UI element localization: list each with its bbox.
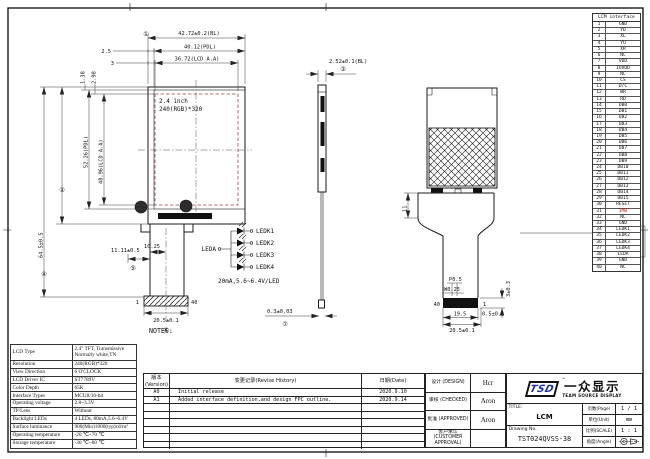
ledk1-label: LEDK1 — [256, 228, 274, 235]
spec-row: View Direction 6 O'CLOCK — [11, 369, 136, 377]
led-circuit: LEDA LEDK1 LEDK2 LEDK3 LEDK4 20mA,5.6~6.… — [202, 222, 280, 285]
pin-number: 14 — [593, 103, 606, 108]
pin-number: 6 — [593, 53, 606, 58]
dim-no-7: ⑦ — [282, 321, 288, 328]
revision-date — [362, 412, 424, 419]
pin-number: 28 — [593, 190, 606, 195]
fpc-tail-front — [141, 224, 193, 320]
pin-name: LEDK1 — [606, 227, 640, 232]
pin-number: 17 — [593, 122, 606, 127]
revision-date: 2020.9.14 — [362, 397, 424, 404]
approval-label: 客户承认 (CUSTOMER APPROVAL) — [426, 430, 471, 448]
approval-signature: Hcr — [471, 374, 505, 392]
spec-label: Surface luminance — [11, 424, 73, 431]
approval-row: 审核 (CHECKED) Aron — [426, 393, 505, 412]
led-rating-label: 20mA,5.6~6.4V/LED — [218, 278, 280, 285]
pin-name: NC — [606, 215, 640, 220]
pin-name: DB4 — [606, 128, 640, 133]
ledk4-label: LEDK4 — [256, 264, 274, 271]
revision-description — [170, 427, 362, 434]
dim-back-flange: 11 — [403, 206, 409, 212]
dim-front-offset-138: 1.38 — [81, 71, 87, 84]
scale-value: 1 : 1 — [616, 426, 642, 436]
title-value: LCM — [507, 410, 582, 424]
spec-value: -20 ℃~70 ℃ — [73, 432, 136, 439]
revision-header: 版本 (Version) 变更记录(Revise History) 日期(Dat… — [144, 374, 424, 389]
revision-version — [144, 434, 170, 441]
spec-value: 240(RGB)*320 — [73, 361, 136, 368]
revision-version — [144, 427, 170, 434]
revision-date — [362, 419, 424, 426]
revision-version — [144, 419, 170, 426]
revision-version — [144, 442, 170, 450]
spec-value: 6 O'CLOCK — [73, 369, 136, 376]
dim-back-05: 0.5±0.1 — [482, 312, 504, 318]
ledk2-label: LEDK2 — [256, 240, 274, 247]
spec-value: Without — [73, 408, 136, 415]
spec-row: Operating temperature -20 ℃~70 ℃ — [11, 432, 136, 440]
dim-no-3: ③ — [340, 66, 346, 73]
revision-row — [144, 404, 424, 412]
drawing-number-cell: Drawing No. TST024QVSS-38 — [507, 426, 583, 447]
pin-number: 20 — [593, 140, 606, 145]
pin-name: DB13 — [606, 184, 640, 189]
revision-row — [144, 419, 424, 427]
spec-label: Color Depth — [11, 384, 73, 391]
pin-name: GND — [606, 22, 640, 27]
back-view: 11 P0.5 W0.25 40 1 3±0.3 19.5 0.5±0.1 20… — [403, 88, 513, 334]
pin-number: 15 — [593, 109, 606, 114]
pin-number: 8 — [593, 66, 606, 71]
revision-date — [362, 427, 424, 434]
dim-side-thickness: 2.52±0.1(BL) — [329, 59, 367, 65]
lcm-interface-table: LCM interface 1 GND 2 YD 3 XL 4 YU 5 XR … — [592, 13, 641, 272]
notes-title: NOTES: — [149, 326, 173, 337]
dim-back-195: 19.5 — [454, 312, 467, 318]
title-cell: TITLE: LCM — [507, 404, 583, 424]
pin-number: 34 — [593, 227, 606, 232]
dim-front-width-pdl: 40.12(PDL) — [184, 45, 216, 51]
pin-name: D/C — [606, 84, 640, 89]
revision-date — [362, 404, 424, 411]
dim-no-1: ① — [143, 31, 149, 38]
pin-name: IOVDD — [606, 66, 640, 71]
trademark-symbol: ™ — [561, 378, 566, 383]
pin-number: 24 — [593, 165, 606, 170]
pin-number: 31 — [593, 209, 606, 214]
pin-name: GND — [606, 258, 640, 263]
spec-row: Storage temperature -30 ℃~80 ℃ — [11, 440, 136, 448]
revision-description: Initial release — [170, 389, 362, 396]
dim-back-stiffener: 3±0.3 — [506, 281, 512, 297]
pin-number: 5 — [593, 47, 606, 52]
pin-number: 19 — [593, 134, 606, 139]
tsd-logo-icon: TSD ™ — [525, 381, 559, 397]
dim-front-height-pdl: 52.26(PDL) — [84, 136, 90, 168]
pin-number: 32 — [593, 215, 606, 220]
pin-number: 35 — [593, 233, 606, 238]
revision-version — [144, 404, 170, 411]
revision-description — [170, 419, 362, 426]
spec-row: Backlight LEDs 4 LEDs, 80mA,5.6~6.4V — [11, 416, 136, 424]
dim-fpc-thickness: 0.3±0.03 — [267, 309, 293, 315]
pin-name: DB11 — [606, 171, 640, 176]
spec-row: TP/Lens Without — [11, 408, 136, 416]
revision-col-date: 日期(Date) — [362, 374, 424, 388]
spec-label: Resolution — [11, 361, 73, 368]
approval-signature — [471, 430, 505, 448]
pin-number: 2 — [593, 28, 606, 33]
approval-label: 设计 (DESIGN) — [426, 374, 471, 392]
spec-label: View Direction — [11, 369, 73, 376]
pin-name: WR — [606, 90, 640, 95]
angle-value — [616, 437, 642, 447]
spec-row: Resolution 240(RGB)*320 — [11, 361, 136, 369]
spec-table: LCD Type 2.4" TFT, Transmissive Normally… — [10, 344, 137, 449]
revision-row — [144, 442, 424, 450]
driver-ic-bar — [158, 213, 212, 219]
spec-row: Color Depth 65K — [11, 384, 136, 392]
pin-name: DB1 — [606, 109, 640, 114]
scale-label: 比例(SCALE) — [583, 426, 616, 436]
approval-label: 批准 (APPROVED) — [426, 411, 471, 429]
approval-row: 设计 (DESIGN) Hcr — [426, 374, 505, 393]
pin-name: CS — [606, 78, 640, 83]
pin-number: 33 — [593, 221, 606, 226]
pin-number: 30 — [593, 202, 606, 207]
pin-name: RESET — [606, 202, 640, 207]
revision-description — [170, 412, 362, 419]
pin-table-body: 1 GND 2 YD 3 XL 4 YU 5 XR 6 NC 7 VDD 8 I… — [593, 22, 640, 271]
pin-number: 4 — [593, 41, 606, 46]
revision-row: A0 Initial release 2020.9.10 — [144, 389, 424, 397]
revision-col-version: 版本 (Version) — [144, 374, 170, 388]
pin-number: 1 — [593, 22, 606, 27]
pin-number: 40 — [593, 265, 606, 271]
spec-value: 4 LEDs, 80mA,5.6~6.4V — [73, 416, 136, 423]
approval-signature: Aron — [471, 411, 505, 429]
dim-front-width-bl: 42.72±0.2(BL) — [178, 31, 219, 37]
pin-name: NC — [606, 265, 640, 271]
revision-body: A0 Initial release 2020.9.10 A1 Added in… — [144, 389, 424, 449]
pin-name: GND — [606, 221, 640, 226]
revision-row — [144, 434, 424, 442]
pin-number: 13 — [593, 97, 606, 102]
pin-name: DB0 — [606, 103, 640, 108]
spec-label: LCD Driver IC — [11, 377, 73, 384]
pin-name: XL — [606, 34, 640, 39]
spec-label: Backlight LEDs — [11, 416, 73, 423]
company-name-cn: 一众显示 — [564, 380, 620, 393]
spec-value: -30 ℃~80 ℃ — [73, 440, 136, 448]
dim-front-height-aa: 48.96(LCD A.A) — [99, 139, 105, 184]
pin-name: RD — [606, 97, 640, 102]
revision-description: Added interface definition,and design FP… — [170, 397, 362, 404]
company-name-en: TEAM SOURCE DISPLAY — [562, 393, 621, 398]
dim-back-205: 20.5±0.1 — [449, 328, 475, 334]
pin-number: 11 — [593, 84, 606, 89]
pin-number: 3 — [593, 34, 606, 39]
pin-number: 22 — [593, 153, 606, 158]
spec-label: Operating voltage — [11, 400, 73, 407]
pin-name: LEDA — [606, 252, 640, 257]
drawing-sheet: 2.4 inch 240(RGB)*320 42.72±0.2(BL) ① 40… — [0, 0, 650, 459]
pin-name: XR — [606, 47, 640, 52]
pin-name: DB3 — [606, 122, 640, 127]
pin-name: IM0 — [606, 209, 640, 214]
revision-description — [170, 442, 362, 450]
led-anode-label: LEDA — [202, 246, 217, 253]
approval-row: 客户承认 (CUSTOMER APPROVAL) — [426, 430, 505, 448]
spec-value: MCU8/16-bit — [73, 392, 136, 399]
pin-number: 16 — [593, 115, 606, 120]
spec-value: 2.4" TFT, Transmissive Normally white,TN — [73, 345, 136, 360]
third-angle-projection-icon — [619, 437, 639, 446]
pin-table-header: LCM interface — [593, 14, 640, 22]
spec-value: ST7789V — [73, 377, 136, 384]
dim-front-offset-25: 2.5 — [101, 49, 111, 55]
spec-value: 900(Min)1000(typ)cd/m² — [73, 424, 136, 431]
spec-row: LCD Driver IC ST7789V — [11, 377, 136, 385]
pin-name: DB15 — [606, 196, 640, 201]
dim-front-width-aa: 36.72(LCD A.A) — [175, 57, 220, 63]
revision-row — [144, 427, 424, 435]
spec-label: Storage temperature — [11, 440, 73, 448]
page-label: 页数(Page) — [583, 404, 616, 414]
company-logo: TSD ™ 一众显示 TEAM SOURCE DISPLAY — [507, 374, 642, 404]
unit-value: mm — [616, 415, 642, 425]
dim-front-1111: 11.11±0.5 — [111, 248, 140, 254]
pin-name: YU — [606, 41, 640, 46]
spec-value: 65K — [73, 384, 136, 391]
adhesive-mark-right — [180, 200, 192, 212]
front-pin40-label: 40 — [191, 300, 197, 306]
spec-row: Surface luminance 900(Min)1000(typ)cd/m² — [11, 424, 136, 432]
pin-number: 21 — [593, 146, 606, 151]
pin-name: DB14 — [606, 190, 640, 195]
pin-number: 39 — [593, 258, 606, 263]
pin-name: LEDK4 — [606, 246, 640, 251]
spec-row: Operating voltage 2.8~3.3V — [11, 400, 136, 408]
title-block: TSD ™ 一众显示 TEAM SOURCE DISPLAY TITLE: LC… — [506, 373, 643, 448]
dim-front-connector-width: 20.5±0.1 — [153, 318, 179, 324]
pin-name: DB10 — [606, 165, 640, 170]
pin-number: 10 — [593, 78, 606, 83]
revision-version — [144, 412, 170, 419]
pin-number: 27 — [593, 184, 606, 189]
revision-col-history: 变更记录(Revise History) — [170, 374, 362, 388]
spec-label: Operating temperature — [11, 432, 73, 439]
front-dimensions: 42.72±0.2(BL) ① 40.12(PDL) 2.5 36.72(LCD… — [39, 31, 246, 334]
back-pin40-label: 40 — [434, 302, 440, 308]
revision-table: 版本 (Version) 变更记录(Revise History) 日期(Dat… — [143, 373, 425, 448]
revision-version: A0 — [144, 389, 170, 396]
pin-name: DB12 — [606, 177, 640, 182]
pin-number: 18 — [593, 128, 606, 133]
dim-no-4: ④ — [41, 271, 47, 278]
page-value: 1 / 1 — [616, 404, 642, 414]
pin-number: 26 — [593, 177, 606, 182]
angle-label: 角度(Angle) — [583, 437, 616, 447]
pin-number: 37 — [593, 246, 606, 251]
pin-name: DB7 — [606, 146, 640, 151]
drawing-number-value: TST024QVSS-38 — [507, 432, 582, 447]
spec-row: LCD Type 2.4" TFT, Transmissive Normally… — [11, 345, 136, 361]
tsd-logo-text: TSD — [529, 383, 556, 394]
pin-number: 9 — [593, 72, 606, 77]
front-pin1-label: 1 — [136, 300, 139, 306]
pin-number: 23 — [593, 159, 606, 164]
approval-label: 审核 (CHECKED) — [426, 393, 471, 411]
unit-label: 单位(Unit) — [583, 415, 616, 425]
pin-number: 29 — [593, 196, 606, 201]
revision-date — [362, 442, 424, 450]
pin-number: 12 — [593, 90, 606, 95]
spec-value: 2.8~3.3V — [73, 400, 136, 407]
revision-description — [170, 404, 362, 411]
spec-label: Interface Types — [11, 392, 73, 399]
dim-no-5: ⑤ — [130, 265, 136, 272]
spec-label: LCD Type — [11, 345, 73, 360]
dim-back-pitch: P0.5 — [449, 277, 462, 283]
led-symbols — [237, 222, 253, 271]
pin-name: NC — [606, 53, 640, 58]
pin-name: YD — [606, 28, 640, 33]
pin-number: 36 — [593, 240, 606, 245]
backlight-hatch-area — [429, 128, 495, 186]
ledk3-label: LEDK3 — [256, 252, 274, 259]
display-size-label: 2.4 inch — [159, 98, 188, 105]
approval-signature: Aron — [471, 393, 505, 411]
dim-front-total-height: 64.5±0.5 — [39, 232, 45, 258]
display-resolution-label: 240(RGB)*320 — [159, 106, 203, 113]
spec-label: TP/Lens — [11, 408, 73, 415]
pin-name: LEDK3 — [606, 240, 640, 245]
pin-row: 40 NC — [593, 265, 640, 271]
adhesive-mark-left — [135, 201, 147, 213]
side-view: 2.52±0.1(BL) ③ 0.3±0.03 ⑦ — [265, 59, 367, 328]
pin-name: VDD — [606, 59, 640, 64]
spec-row: Interface Types MCU8/16-bit — [11, 392, 136, 400]
pin-name: LEDK2 — [606, 233, 640, 238]
pin-name: DB6 — [606, 140, 640, 145]
approvals-block: 设计 (DESIGN) Hcr 审核 (CHECKED) Aron 批准 (AP… — [425, 373, 506, 448]
pin-number: 7 — [593, 59, 606, 64]
revision-description — [170, 434, 362, 441]
pin-name: DB2 — [606, 115, 640, 120]
pin-number: 38 — [593, 252, 606, 257]
dim-front-offset-3: 3 — [111, 61, 114, 67]
dim-back-finger-width: W0.25 — [444, 287, 460, 293]
pin-name: DB9 — [606, 159, 640, 164]
dim-front-1025: 10.25 — [144, 244, 160, 250]
pin-number: 25 — [593, 171, 606, 176]
notes-block: NOTES: — [149, 326, 173, 337]
dim-no-2: ② — [59, 187, 65, 194]
pin-name: DB5 — [606, 134, 640, 139]
revision-row: A1 Added interface definition,and design… — [144, 397, 424, 405]
pin-name: DB8 — [606, 153, 640, 158]
fpc-connector-back — [443, 298, 478, 308]
approval-row: 批准 (APPROVED) Aron — [426, 411, 505, 430]
dim-front-offset-298: 2.98 — [92, 71, 98, 84]
back-pin1-label: 1 — [483, 302, 486, 308]
revision-date — [362, 434, 424, 441]
revision-version: A1 — [144, 397, 170, 404]
pin-name: NC — [606, 72, 640, 77]
revision-row — [144, 412, 424, 420]
revision-date: 2020.9.10 — [362, 389, 424, 396]
